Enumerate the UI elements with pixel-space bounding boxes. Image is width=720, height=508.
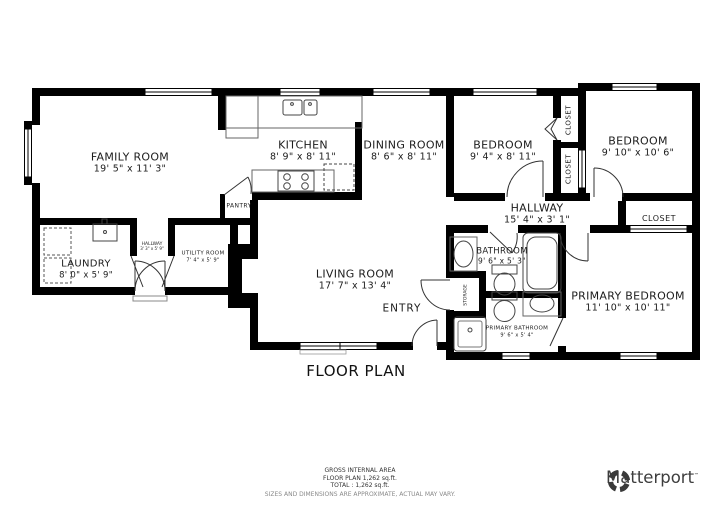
fireplace-notch: [242, 259, 258, 293]
room-label-primary-bathroom: PRIMARY BATHROOM 9' 6" x 5' 4": [486, 326, 548, 339]
matterport-logo-icon: [606, 468, 632, 494]
footer-area-summary: GROSS INTERNAL AREA FLOOR PLAN 1,262 sq.…: [265, 467, 455, 498]
room-label-kitchen: KITCHEN 8' 9" x 8' 11": [270, 139, 336, 164]
window-dining-top: [373, 89, 430, 96]
window-sill: [300, 350, 346, 354]
closet-label-top: CLOSET: [565, 105, 574, 135]
room-label-utility-room: UTILITY ROOM 7' 4" x 5' 9": [182, 251, 225, 264]
entry-label: ENTRY: [383, 303, 422, 316]
window-primary-bed-bottom: [620, 353, 657, 360]
room-dims: 15' 4" x 3' 1": [504, 215, 570, 227]
door-front-living: [412, 320, 437, 346]
closet-slider-bedroom2: [579, 150, 586, 188]
room-name: FAMILY ROOM: [91, 151, 169, 164]
closet-bifold-icon: [545, 118, 557, 140]
door-bedroom1: [507, 161, 543, 197]
room-name: PRIMARY BEDROOM: [571, 290, 685, 303]
room-dims: 9' 6" x 5' 4": [486, 332, 548, 338]
closet-label-right: CLOSET: [642, 214, 676, 224]
room-dims: 9' 4" x 8' 11": [470, 152, 536, 164]
room-dims: 9' 10" x 10' 6": [602, 148, 674, 160]
bathtub-icon: [523, 233, 561, 293]
toilet-icon: [492, 265, 517, 295]
room-dims: 17' 7" x 13' 4": [316, 281, 394, 293]
window-family-top: [145, 89, 212, 96]
room-label-hallway-small: HALLWAY 3' 3" x 5' 9": [140, 242, 164, 252]
floorplan-area: FLOOR PLAN 1,262 sq.ft.: [265, 475, 455, 483]
room-name: BEDROOM: [602, 135, 674, 148]
room-dims: 11' 10" x 10' 11": [571, 303, 685, 315]
door-primary-bath: [550, 318, 563, 346]
room-dims: 8' 0" x 5' 9": [59, 271, 113, 281]
room-label-hallway: HALLWAY 15' 4" x 3' 1": [504, 202, 570, 227]
window-kitchen-sink: [280, 89, 320, 96]
room-label-bedroom-1: BEDROOM 9' 4" x 8' 11": [470, 139, 536, 164]
room-dims: 9' 6" x 5' 3": [476, 257, 528, 266]
stove-icon: [278, 171, 314, 191]
room-name: UTILITY ROOM: [182, 251, 225, 258]
floor-plan-canvas: FAMILY ROOM 19' 5" x 11' 3" KITCHEN 8' 9…: [0, 0, 720, 508]
kitchen-sink-icon: [283, 100, 317, 115]
room-label-primary-bedroom: PRIMARY BEDROOM 11' 10" x 10' 11": [571, 290, 685, 315]
room-label-laundry: LAUNDRY 8' 0" x 5' 9": [59, 259, 113, 282]
shower-icon: [454, 317, 486, 351]
room-name: KITCHEN: [270, 139, 336, 152]
floor-plan-drawing: [0, 0, 720, 508]
room-name: LIVING ROOM: [316, 268, 394, 281]
room-name: BATHROOM: [476, 246, 528, 256]
room-label-family-room: FAMILY ROOM 19' 5" x 11' 3": [91, 151, 169, 176]
window-bedroom2-top: [612, 84, 657, 91]
door-hall-front: [135, 261, 165, 291]
room-dims: 7' 4" x 5' 9": [182, 257, 225, 263]
washer-icon: [44, 228, 71, 255]
total-area: TOTAL : 1,262 sq.ft.: [265, 482, 455, 490]
room-name: LAUNDRY: [59, 259, 113, 271]
room-label-bathroom: BATHROOM 9' 6" x 5' 3": [476, 246, 528, 266]
window-bay: [25, 129, 32, 177]
closet-slider-right: [630, 226, 687, 233]
window-living-bottom: [300, 343, 377, 350]
room-name: BEDROOM: [470, 139, 536, 152]
window-bedroom1-top: [473, 89, 537, 96]
window-primary-bath-bottom: [502, 353, 530, 360]
room-dims: 8' 6" x 8' 11": [363, 152, 444, 164]
plan-title: FLOOR PLAN: [306, 362, 405, 380]
bathroom-sink-icon: [454, 241, 473, 267]
matterport-brand: Matterport™: [606, 468, 699, 487]
room-dims: 3' 3" x 5' 9": [140, 247, 164, 252]
front-door-threshold: [133, 296, 167, 301]
room-label-bedroom-2: BEDROOM 9' 10" x 10' 6": [602, 135, 674, 160]
closet-label-mid: CLOSET: [565, 154, 574, 184]
disclaimer: SIZES AND DIMENSIONS ARE APPROXIMATE, AC…: [265, 491, 455, 499]
storage-label: STORAGE: [463, 284, 468, 305]
room-label-living-room: LIVING ROOM 17' 7" x 13' 4": [316, 268, 394, 293]
room-name: PRIMARY BATHROOM: [486, 326, 548, 333]
room-name: DINING ROOM: [363, 139, 444, 152]
primary-bathroom-fixtures: [454, 292, 561, 351]
room-dims: 19' 5" x 11' 3": [91, 164, 169, 176]
refrigerator-icon: [324, 164, 354, 190]
door-bedroom2: [594, 168, 623, 197]
room-label-dining-room: DINING ROOM 8' 6" x 8' 11": [363, 139, 444, 164]
trademark-symbol: ™: [694, 473, 699, 479]
door-storage-entry: [421, 280, 450, 310]
pantry-label: PANTRY: [226, 202, 251, 209]
room-name: HALLWAY: [504, 202, 570, 215]
room-dims: 8' 9" x 8' 11": [270, 152, 336, 164]
gross-area-heading: GROSS INTERNAL AREA: [265, 467, 455, 475]
door-pantry: [224, 177, 251, 195]
